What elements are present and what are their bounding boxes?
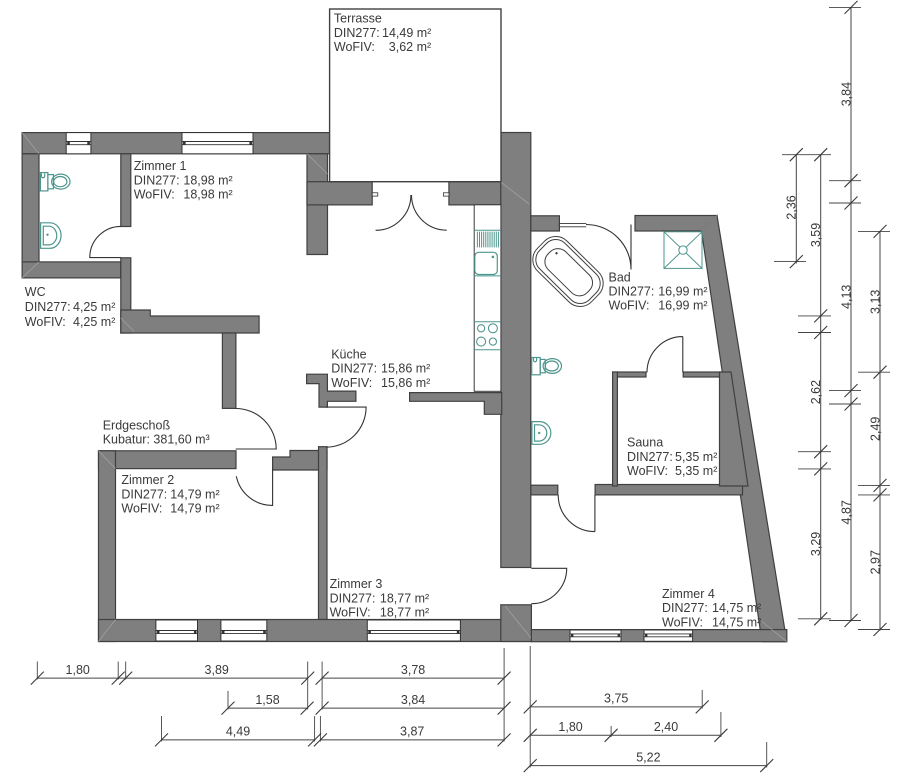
svg-text:WoFIV:: WoFIV: [609,299,650,313]
svg-text:1,58: 1,58 [255,693,279,707]
svg-text:4,13: 4,13 [839,285,853,309]
svg-text:DIN277:: DIN277: [121,487,167,501]
svg-text:Zimmer 3: Zimmer 3 [330,577,383,591]
svg-text:DIN277:: DIN277: [134,173,180,187]
svg-text:Kubatur: 381,60 m³: Kubatur: 381,60 m³ [103,433,210,447]
svg-text:WoFIV:: WoFIV: [334,40,375,54]
svg-text:WC: WC [25,285,46,299]
svg-text:DIN277:: DIN277: [330,591,376,605]
svg-text:15,86 m²: 15,86 m² [381,362,430,376]
svg-text:Terrasse: Terrasse [334,12,382,26]
svg-text:Küche: Küche [331,347,366,361]
svg-text:4,25 m²: 4,25 m² [73,300,115,314]
svg-text:2,97: 2,97 [868,550,882,574]
svg-text:3,89: 3,89 [205,663,229,677]
svg-text:1,80: 1,80 [558,720,582,734]
svg-text:1,80: 1,80 [66,663,90,677]
svg-text:WoFIV:: WoFIV: [331,376,372,390]
svg-text:3,59: 3,59 [809,223,823,247]
svg-text:DIN277:: DIN277: [334,26,380,40]
svg-text:WoFIV:: WoFIV: [627,464,668,478]
svg-text:2,40: 2,40 [654,720,678,734]
svg-text:18,98 m²: 18,98 m² [183,173,232,187]
svg-text:Zimmer 2: Zimmer 2 [121,473,174,487]
svg-text:WoFIV:: WoFIV: [134,188,175,202]
svg-text:4,87: 4,87 [839,500,853,524]
svg-text:16,99 m²: 16,99 m² [658,285,707,299]
svg-text:14,79 m²: 14,79 m² [170,487,219,501]
svg-text:4,49: 4,49 [226,725,250,739]
svg-text:WoFIV:: WoFIV: [662,615,703,629]
svg-text:5,35 m²: 5,35 m² [675,464,717,478]
svg-text:4,25 m²: 4,25 m² [73,315,115,329]
svg-text:WoFIV:: WoFIV: [330,606,371,620]
svg-text:3,84: 3,84 [401,693,425,707]
svg-text:14,49 m²: 14,49 m² [382,26,431,40]
svg-text:Erdgeschoß: Erdgeschoß [103,419,171,433]
svg-text:Zimmer 1: Zimmer 1 [134,159,187,173]
svg-text:15,86 m²: 15,86 m² [381,376,430,390]
svg-text:WoFIV:: WoFIV: [121,502,162,516]
svg-text:DIN277:: DIN277: [331,362,377,376]
svg-text:3,13: 3,13 [868,290,882,314]
svg-text:3,78: 3,78 [401,663,425,677]
svg-text:Zimmer 4: Zimmer 4 [662,587,715,601]
svg-text:2,49: 2,49 [868,417,882,441]
svg-text:WoFIV:: WoFIV: [25,315,66,329]
svg-text:3,29: 3,29 [809,532,823,556]
svg-text:14,75 m²: 14,75 m² [712,615,761,629]
svg-text:16,99 m²: 16,99 m² [658,299,707,313]
svg-text:DIN277:: DIN277: [609,285,655,299]
svg-text:14,75 m²: 14,75 m² [712,601,761,615]
svg-text:18,77 m²: 18,77 m² [380,591,429,605]
svg-text:DIN277:: DIN277: [25,300,71,314]
svg-text:3,84: 3,84 [839,82,853,106]
svg-text:DIN277:: DIN277: [627,450,673,464]
svg-text:14,79 m²: 14,79 m² [170,502,219,516]
svg-text:5,22: 5,22 [636,750,660,764]
svg-text:3,87: 3,87 [400,725,424,739]
svg-text:DIN277:: DIN277: [662,601,708,615]
svg-text:Sauna: Sauna [627,436,663,450]
svg-text:2,62: 2,62 [809,380,823,404]
svg-text:2,36: 2,36 [785,195,799,219]
svg-text:18,98 m²: 18,98 m² [183,188,232,202]
svg-text:5,35 m²: 5,35 m² [675,450,717,464]
svg-text:3,75: 3,75 [604,692,628,706]
svg-text:3,62 m²: 3,62 m² [389,40,431,54]
svg-text:Bad: Bad [609,270,631,284]
svg-text:18,77 m²: 18,77 m² [380,606,429,620]
